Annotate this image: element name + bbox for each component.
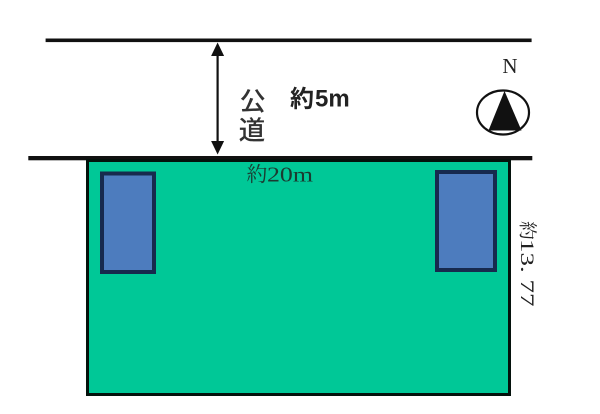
- svg-text:N: N: [502, 54, 517, 78]
- svg-text:13. 77: 13. 77: [516, 239, 537, 307]
- svg-text:20m: 20m: [267, 163, 313, 187]
- svg-text:5m: 5m: [315, 86, 350, 113]
